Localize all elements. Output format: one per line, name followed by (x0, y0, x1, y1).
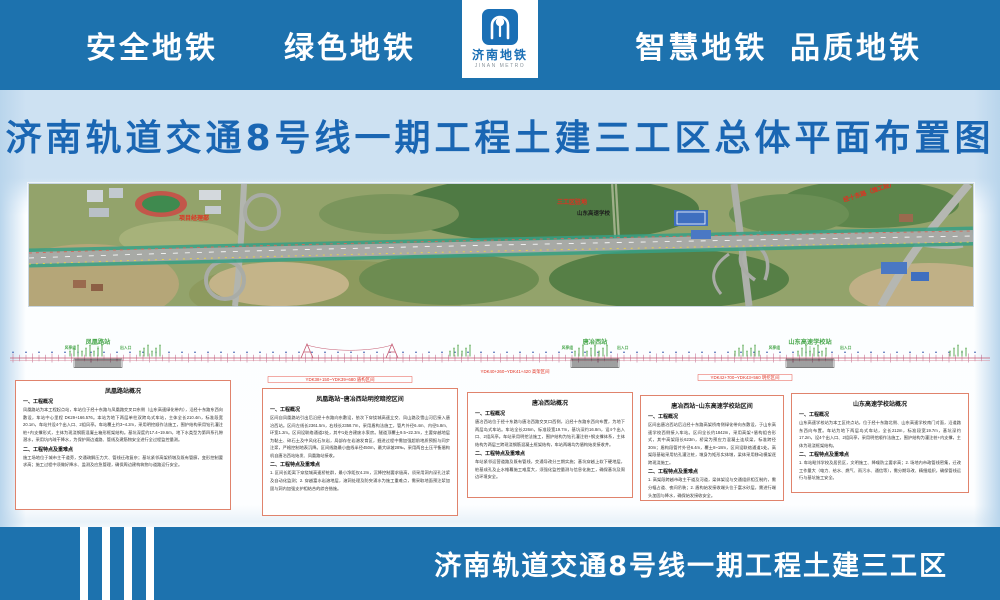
section-body: 1. 车站毗邻学校及居民区，文明施工、降噪防尘要求高；2. 场地内市政管线密集，… (799, 459, 961, 482)
info-box-station-1: 凤凰路站概况 一、工程概况 凤凰路站为本工程起点站，车站位于经十东路与凤凰路交叉… (15, 380, 231, 510)
info-box-title: 唐冶西站概况 (475, 398, 625, 407)
info-box-section-2: 唐冶西站~山东高速学校站区间 一、工程概况 区间出唐冶西站后沿经十东路高架桥南侧… (640, 395, 784, 501)
section-heading: 二、工程特点及重难点 (799, 451, 961, 458)
section-body: 1. 高架段跨越市政主干道及河道，梁体架设与交通组织相互制约，需分幅占道、夜间吊… (648, 476, 776, 499)
info-box-station-3: 山东高速学校站概况 一、工程概况 山东高速学校站为本工区终点站，位于经十东路北侧… (791, 393, 969, 493)
station-label: 凤凰路站 (86, 338, 112, 346)
section-heading: 一、工程概况 (799, 411, 961, 418)
section-heading: 二、工程特点及重难点 (475, 450, 625, 457)
station-note-right: 出入口 (120, 345, 132, 350)
segment-label-3: YDK42+700~YDK43+560 明挖区间 (711, 374, 780, 381)
footer-stripe (124, 527, 132, 600)
tick-marks (12, 352, 981, 363)
section-body: 山东高速学校站为本工区终点站，位于经十东路北侧、山东高速学校南门对面，沿道路东西… (799, 419, 961, 449)
header-slogan-right: 智慧地铁 品质地铁 (635, 0, 922, 90)
section-heading: 二、工程特点及重难点 (270, 461, 450, 468)
metro-logo-cn: 济南地铁 (472, 49, 528, 62)
section-body: 唐冶西站位于经十东路与唐冶西路交叉口西侧，沿经十东路东西向布置，为地下两层岛式车… (475, 418, 625, 448)
info-box-section-1: 凤凰路站~唐冶西站明挖暗挖区间 一、工程概况 区间自凤凰路站引出后沿经十东路向东… (262, 388, 458, 516)
vegetation-marks (69, 345, 967, 357)
station-note-left: 风亭组 (769, 345, 781, 350)
plan-board: 安全地铁 绿色地铁 智慧地铁 品质地铁 济南地铁 JINAN METRO 济南轨… (0, 0, 1000, 600)
station-note-left: 风亭组 (562, 345, 574, 350)
info-box-title: 凤凰路站~唐冶西站明挖暗挖区间 (270, 394, 450, 403)
page-title: 济南轨道交通8号线一期工程土建三工区总体平面布置图 (0, 92, 1000, 178)
map-label-camp: 项目经理部 (179, 214, 209, 222)
info-box-station-2: 唐冶西站概况 一、工程概况 唐冶西站位于经十东路与唐冶西路交叉口西侧，沿经十东路… (467, 392, 633, 498)
footer-label: 济南轨道交通8号线一期工程土建三工区 (434, 544, 948, 583)
segment-label-2: YDK40+260~YDK41+420 高架区间 (481, 368, 550, 375)
section-body: 区间出唐冶西站后沿经十东路高架桥南侧绿化带向东敷设，于山东高速学校西侧接入车站。… (648, 421, 776, 466)
station-note-left: 风亭组 (65, 345, 77, 350)
station-group-2: 唐冶西站 风亭组 出入口 (562, 338, 629, 356)
section-body: 1. 区间长距离下穿绕城高速桥桩群，最小净距仅4.2m，沉降控制要求极高，须采用… (270, 469, 450, 492)
footer-stripe (102, 527, 110, 600)
section-heading: 二、工程特点及重难点 (23, 446, 223, 453)
metro-logo-en: JINAN METRO (475, 63, 525, 69)
section-heading: 一、工程概况 (475, 410, 625, 417)
header-slogan-left: 安全地铁 绿色地铁 (86, 0, 416, 90)
segment-label-1: YDK38+150~YDK39+680 盾构区间 (306, 376, 375, 383)
section-heading: 一、工程概况 (23, 398, 223, 405)
station-group-1: 凤凰路站 风亭组 出入口 (65, 338, 132, 356)
section-body: 施工场地位于城市主干道旁，交通疏解压力大、管线迁改复杂；基坑紧邻高架桥墩及既有管… (23, 454, 223, 469)
info-box-title: 凤凰路站概况 (23, 386, 223, 395)
section-heading: 一、工程概况 (648, 413, 776, 420)
info-box-title: 山东高速学校站概况 (799, 399, 961, 408)
metro-logo-icon (480, 7, 520, 47)
station-label: 山东高速学校站 (788, 338, 832, 346)
station-label: 唐冶西站 (582, 338, 609, 346)
map-label-site: 三工区驻地 (557, 198, 587, 206)
footer-stripe (146, 527, 154, 600)
info-box-title: 唐冶西站~山东高速学校站区间 (648, 401, 776, 410)
section-heading: 二、工程特点及重难点 (648, 468, 776, 475)
metro-logo: 济南地铁 JINAN METRO (462, 0, 538, 78)
section-heading: 一、工程概况 (270, 406, 450, 413)
map-label-school: 山东高速学校 (577, 209, 611, 217)
section-body: 凤凰路站为本工程起点站，车站位于经十东路与凤凰路交叉口东侧（山东高速绿化带内），… (23, 406, 223, 444)
section-body: 车站紧邻运营道路及既有管线，交通导改分三期实施；基坑穿越上软下硬地层，桩基成孔及… (475, 458, 625, 481)
satellite-map: 项目经理部 三工区驻地 山东高速学校 经十东路（施工段） (28, 183, 974, 307)
station-group-3: 山东高速学校站 风亭组 出入口 (769, 338, 852, 356)
footer-stripe (80, 527, 88, 600)
station-note-right: 出入口 (617, 345, 629, 350)
station-note-right: 出入口 (840, 345, 852, 350)
section-body: 区间自凤凰路站引出后沿经十东路向东敷设，依次下穿绕城高速立交、凤山路及雪山河后接… (270, 414, 450, 459)
